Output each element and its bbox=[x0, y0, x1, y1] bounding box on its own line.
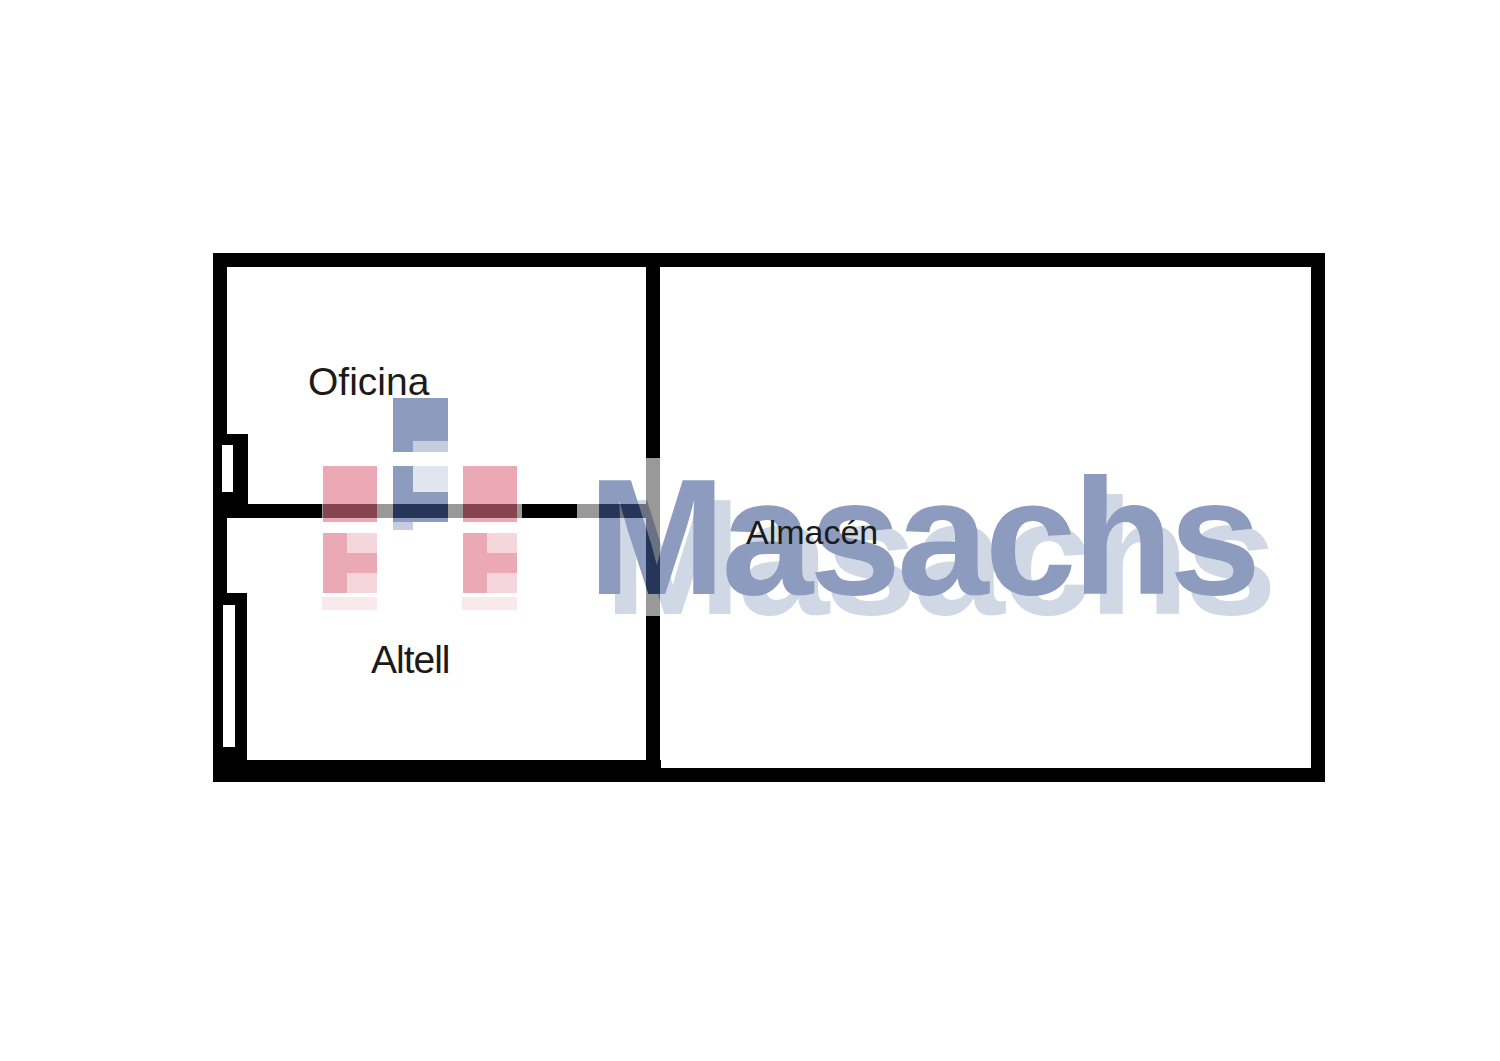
wall-top bbox=[213, 253, 1325, 267]
logo-faint-row-right bbox=[462, 597, 517, 610]
wall-divider-oficina-altell bbox=[213, 504, 660, 518]
logo-pink-arm-top-left bbox=[347, 533, 377, 553]
logo-pink-arm-bottom-right bbox=[487, 573, 517, 593]
logo-pink-bar-right bbox=[463, 533, 487, 593]
watermark-brand-text: Masachs bbox=[588, 455, 1257, 620]
wall-bottom-left-section bbox=[213, 760, 661, 782]
logo-pink-arm-mid-right bbox=[487, 553, 517, 573]
watermark-brand-ghost-text: Masachs bbox=[604, 475, 1273, 640]
room-label-almacen: Almacén bbox=[746, 513, 878, 552]
logo-faint-row-left bbox=[322, 597, 377, 610]
watermark-text-box: Masachs Masachs bbox=[577, 458, 1255, 616]
logo-pale-blue-square bbox=[413, 466, 448, 492]
wall-right bbox=[1311, 253, 1325, 782]
logo-blue-square bbox=[393, 398, 448, 452]
room-label-altell: Altell bbox=[371, 638, 450, 683]
logo-pink-bar-left bbox=[323, 533, 347, 593]
logo-pink-arm-bottom-left bbox=[347, 573, 377, 593]
logo-pink-arm-mid-left bbox=[347, 553, 377, 573]
logo-blue-notch bbox=[413, 441, 448, 452]
floor-plan-canvas: Masachs Masachs Oficina Altell Almacén bbox=[0, 0, 1500, 1061]
logo-blue-stub bbox=[393, 522, 413, 530]
door-leaf-lower bbox=[223, 605, 235, 747]
room-label-oficina: Oficina bbox=[308, 360, 429, 405]
logo-pink-arm-top-right bbox=[487, 533, 517, 553]
door-leaf-upper bbox=[222, 445, 233, 492]
wall-bottom-right-section bbox=[646, 768, 1325, 782]
